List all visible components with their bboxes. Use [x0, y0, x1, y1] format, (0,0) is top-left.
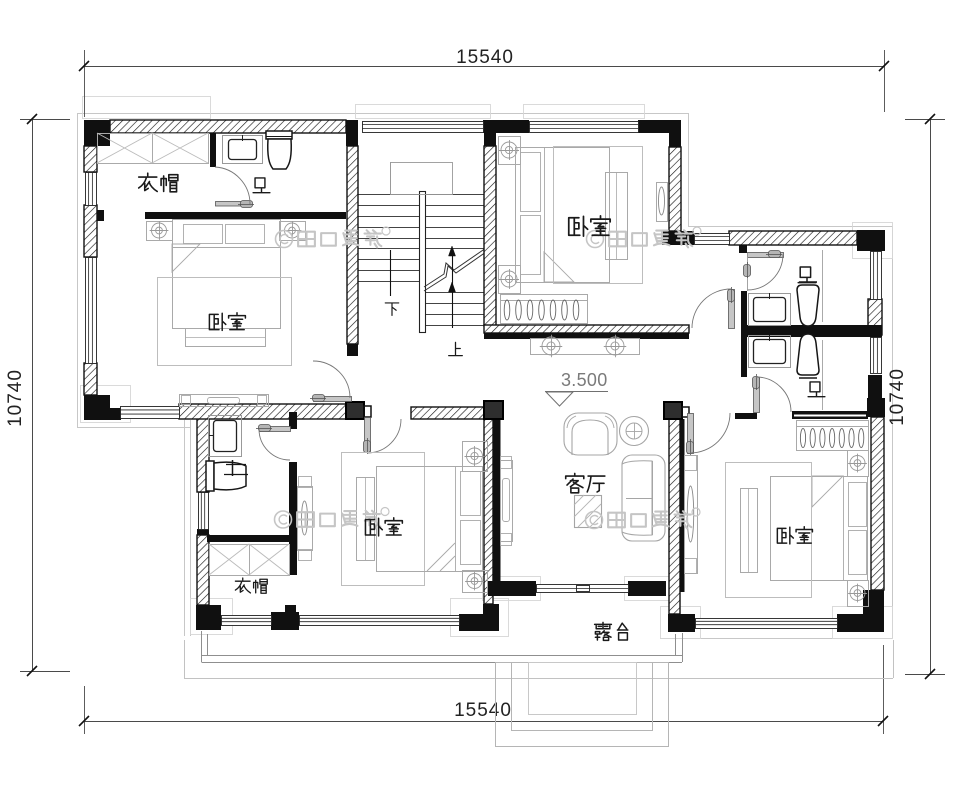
svg-text:10740: 10740 — [5, 369, 26, 427]
svg-text:15540: 15540 — [454, 700, 512, 721]
svg-text:15540: 15540 — [456, 47, 514, 68]
svg-text:10740: 10740 — [887, 368, 908, 426]
svg-text:3.500: 3.500 — [561, 370, 608, 390]
